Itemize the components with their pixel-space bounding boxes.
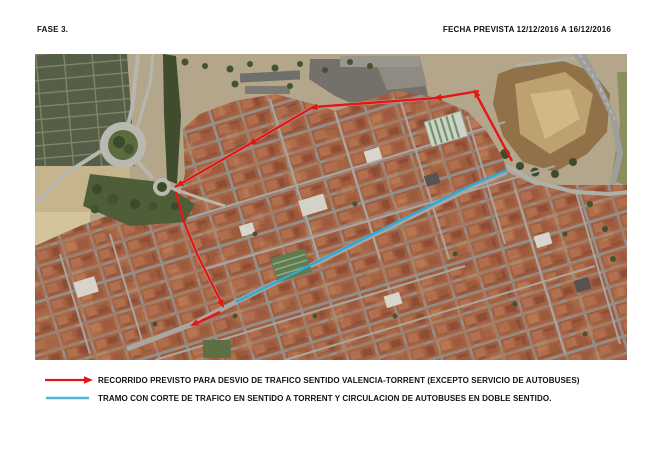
legend-item-closure: TRAMO CON CORTE DE TRAFICO EN SENTIDO A … bbox=[45, 392, 552, 404]
satellite-map-figure bbox=[35, 54, 627, 360]
legend-label-closure: TRAMO CON CORTE DE TRAFICO EN SENTIDO A … bbox=[98, 394, 552, 403]
legend-item-diversion: RECORRIDO PREVISTO PARA DESVIO DE TRAFIC… bbox=[45, 374, 580, 386]
phase-title: FASE 3. bbox=[37, 25, 68, 34]
document-page: FASE 3. FECHA PREVISTA 12/12/2016 A 16/1… bbox=[0, 0, 650, 459]
red-arrow-symbol bbox=[45, 375, 93, 385]
date-title: FECHA PREVISTA 12/12/2016 A 16/12/2016 bbox=[443, 25, 611, 34]
traffic-map bbox=[35, 54, 627, 360]
legend-label-diversion: RECORRIDO PREVISTO PARA DESVIO DE TRAFIC… bbox=[98, 376, 580, 385]
blue-line-symbol bbox=[45, 393, 93, 403]
